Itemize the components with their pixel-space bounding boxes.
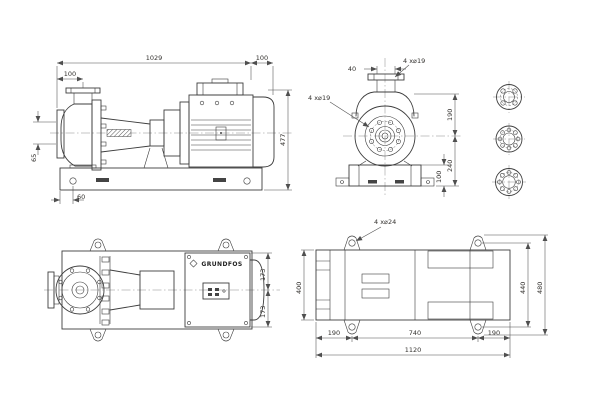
dim-hole-spacing-label: 740 xyxy=(409,329,421,337)
suction-holes-leader xyxy=(330,102,369,127)
dim-overall-length-label: 1029 xyxy=(146,54,163,62)
dim-half-width-lower-label: 173 xyxy=(259,306,267,318)
casing-bolts-plan xyxy=(102,257,109,325)
dim-fan-end-label: 100 xyxy=(256,54,268,62)
flange-detail-bottom xyxy=(492,165,526,199)
discharge-holes-leader xyxy=(395,65,409,77)
fan-cover xyxy=(253,97,274,167)
dim-edge-to-hole-left-label: 190 xyxy=(328,329,340,337)
grundfos-logomark xyxy=(190,260,197,267)
dim-edge-to-hole-right-label: 190 xyxy=(488,329,500,337)
terminal-box xyxy=(197,83,243,95)
anchor-hole xyxy=(244,178,250,184)
casing-cover xyxy=(92,100,101,170)
terminal-box-lid xyxy=(212,79,228,83)
flange-details xyxy=(492,81,526,199)
anchor-hole xyxy=(70,178,76,184)
side-elevation-view: 1029 100 100 65 477 60 xyxy=(30,54,292,204)
dim-hole-span-width-label: 440 xyxy=(519,282,527,294)
foot-left xyxy=(336,178,349,186)
motor-foot-pad xyxy=(428,302,493,319)
grout-slot xyxy=(96,178,109,182)
dim-discharge-bore-label: 40 xyxy=(348,65,356,73)
pump-dimensional-drawing: 1029 100 100 65 477 60 xyxy=(0,0,600,400)
flange-detail-middle xyxy=(493,123,525,155)
flange-detail-top xyxy=(493,81,525,113)
dim-base-height-label: 100 xyxy=(435,171,443,183)
grout-slot xyxy=(213,178,226,182)
dim-total-height-label: 477 xyxy=(279,134,287,146)
dim-plate-width-label: 400 xyxy=(295,282,303,294)
plan-view: GRUNDFOS 173 173 xyxy=(44,239,280,341)
baseplate-side xyxy=(60,168,262,190)
pump-foot-pad xyxy=(362,274,389,283)
cooling-fins xyxy=(191,120,251,150)
discharge-flange-end xyxy=(368,74,404,80)
foot-right xyxy=(421,178,434,186)
dim-half-width-upper-label: 173 xyxy=(259,269,267,281)
motor-foot-pad xyxy=(428,251,493,268)
dim-suction-offset-label: 100 xyxy=(64,70,76,78)
baseplate-plan-view: 4 x⌀24 190 740 190 1120 400 440 480 xyxy=(295,218,548,358)
brand-label: GRUNDFOS xyxy=(201,261,242,268)
discharge-holes-label: 4 x⌀19 xyxy=(403,57,425,65)
anchor-holes-label: 4 x⌀24 xyxy=(374,218,396,226)
motor-body xyxy=(189,95,253,167)
dim-flange-to-centerline-label: 190 xyxy=(446,109,454,121)
pump-foot-pad xyxy=(362,289,389,298)
end-view: 40 4 x⌀19 4 x⌀19 190 240 100 xyxy=(308,57,462,197)
dim-overall-width-label: 480 xyxy=(536,282,544,294)
anchor-holes-leader xyxy=(356,227,381,241)
dim-suction-bore-label: 65 xyxy=(30,154,38,162)
dim-overall-length-base-label: 1120 xyxy=(405,346,422,354)
technical-drawing-canvas: 1029 100 100 65 477 60 xyxy=(0,0,600,400)
dim-centerline-to-base-label: 240 xyxy=(446,160,454,172)
dim-foot-edge-label: 60 xyxy=(77,193,85,201)
shaft xyxy=(107,130,131,137)
volute-casing xyxy=(61,104,92,166)
suction-holes-label: 4 x⌀19 xyxy=(308,94,330,102)
